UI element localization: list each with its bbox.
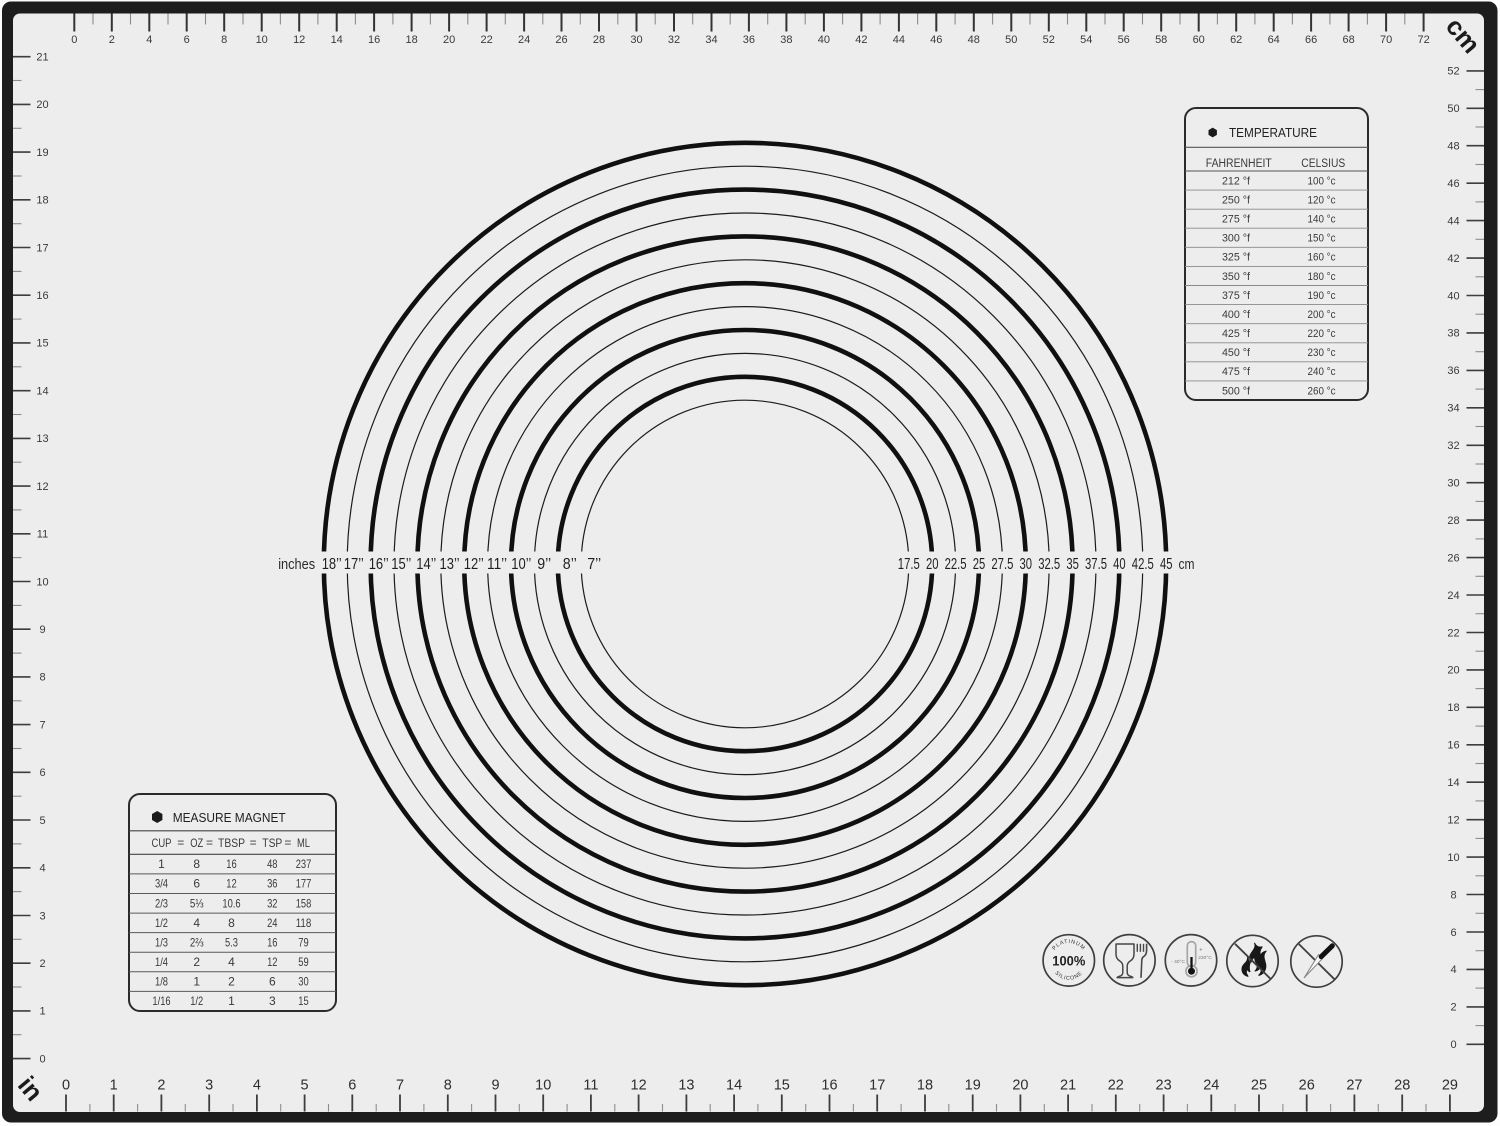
svg-text:14’’: 14’’ (416, 556, 436, 573)
svg-text:20: 20 (443, 34, 455, 46)
svg-text:26: 26 (555, 34, 567, 46)
svg-text:72: 72 (1417, 34, 1429, 46)
svg-text:TBSP: TBSP (218, 836, 245, 850)
svg-text:64: 64 (1268, 34, 1280, 46)
svg-text:28: 28 (593, 34, 605, 46)
svg-text:23: 23 (1156, 1078, 1172, 1094)
svg-text:6: 6 (39, 767, 45, 779)
svg-text:36: 36 (267, 877, 278, 891)
svg-text:118: 118 (296, 916, 312, 930)
svg-text:OZ: OZ (190, 836, 203, 850)
svg-text:2: 2 (193, 955, 200, 969)
svg-text:10: 10 (535, 1078, 551, 1094)
svg-text:4: 4 (39, 863, 45, 875)
svg-text:375 °f: 375 °f (1222, 290, 1251, 302)
svg-text:4: 4 (1450, 964, 1456, 976)
svg-text:160 °c: 160 °c (1308, 252, 1336, 264)
svg-text:212 °f: 212 °f (1222, 175, 1251, 187)
svg-text:29: 29 (1442, 1078, 1458, 1094)
svg-text:30: 30 (1020, 556, 1033, 573)
svg-text:1: 1 (158, 857, 165, 871)
svg-text:100 °c: 100 °c (1308, 175, 1336, 187)
svg-text:450 °f: 450 °f (1222, 347, 1251, 359)
svg-text:325 °f: 325 °f (1222, 252, 1251, 264)
svg-text:32: 32 (267, 896, 278, 910)
svg-text:8: 8 (193, 857, 200, 871)
svg-text:18: 18 (36, 195, 48, 207)
svg-text:18: 18 (917, 1078, 933, 1094)
svg-text:2: 2 (39, 958, 45, 970)
svg-text:22.5: 22.5 (945, 556, 967, 573)
svg-text:3/4: 3/4 (155, 877, 168, 891)
svg-text:15’’: 15’’ (391, 556, 411, 573)
svg-text:8: 8 (221, 34, 227, 46)
svg-text:500 °f: 500 °f (1222, 385, 1251, 397)
svg-text:- 40°C: - 40°C (1171, 959, 1185, 965)
svg-text:11: 11 (37, 529, 48, 541)
svg-text:60: 60 (1193, 34, 1205, 46)
svg-text:50: 50 (1005, 34, 1017, 46)
svg-text:8’’: 8’’ (563, 556, 577, 573)
svg-text:140 °c: 140 °c (1308, 214, 1336, 226)
svg-text:68: 68 (1342, 34, 1354, 46)
svg-text:12: 12 (631, 1078, 647, 1094)
svg-text:56: 56 (1118, 34, 1130, 46)
svg-text:25: 25 (973, 556, 986, 573)
svg-text:19: 19 (965, 1078, 981, 1094)
svg-text:17’’: 17’’ (344, 556, 364, 573)
svg-text:1: 1 (228, 994, 235, 1008)
svg-text:52: 52 (1447, 66, 1459, 78)
svg-text:2: 2 (228, 975, 235, 989)
svg-text:12: 12 (293, 34, 305, 46)
svg-text:2: 2 (109, 34, 115, 46)
svg-text:30: 30 (630, 34, 642, 46)
svg-text:32: 32 (1447, 440, 1459, 452)
svg-text:237: 237 (296, 857, 312, 871)
svg-text:8: 8 (1450, 889, 1456, 901)
svg-text:2: 2 (1450, 1002, 1456, 1014)
svg-text:24: 24 (267, 916, 278, 930)
svg-text:70: 70 (1380, 34, 1392, 46)
svg-text:21: 21 (36, 52, 48, 64)
svg-text:6: 6 (348, 1078, 356, 1094)
svg-text:0: 0 (71, 34, 77, 46)
svg-text:250 °f: 250 °f (1222, 194, 1251, 206)
svg-text:32: 32 (668, 34, 680, 46)
svg-text:24: 24 (1447, 590, 1459, 602)
svg-text:0: 0 (1450, 1039, 1456, 1051)
svg-text:48: 48 (267, 857, 278, 871)
svg-text:8: 8 (444, 1078, 452, 1094)
svg-text:20: 20 (36, 99, 48, 111)
svg-text:18: 18 (405, 34, 417, 46)
svg-text:40: 40 (818, 34, 830, 46)
svg-text:6: 6 (184, 34, 190, 46)
svg-text:2: 2 (157, 1078, 165, 1094)
svg-text:260 °c: 260 °c (1308, 385, 1336, 397)
svg-text:54: 54 (1080, 34, 1092, 46)
svg-text:1/3: 1/3 (155, 935, 168, 949)
svg-text:16: 16 (821, 1078, 837, 1094)
svg-text:220 °c: 220 °c (1308, 328, 1336, 340)
svg-text:17: 17 (869, 1078, 885, 1094)
svg-text:4: 4 (253, 1078, 261, 1094)
svg-text:15: 15 (774, 1078, 790, 1094)
svg-text:8: 8 (39, 672, 45, 684)
svg-text:158: 158 (296, 896, 312, 910)
svg-text:11’’: 11’’ (487, 556, 507, 573)
svg-text:24: 24 (518, 34, 530, 46)
svg-text:40: 40 (1447, 290, 1459, 302)
svg-text:7: 7 (39, 719, 45, 731)
svg-text:1: 1 (193, 975, 200, 989)
svg-text:6: 6 (1450, 927, 1456, 939)
svg-text:100%: 100% (1052, 953, 1085, 968)
svg-text:58: 58 (1155, 34, 1167, 46)
svg-text:1: 1 (39, 1006, 45, 1018)
svg-text:20: 20 (1447, 665, 1459, 677)
svg-text:30: 30 (298, 975, 309, 989)
svg-text:46: 46 (930, 34, 942, 46)
svg-text:1/2: 1/2 (190, 994, 203, 1008)
svg-text:30: 30 (1447, 478, 1459, 490)
svg-text:19: 19 (36, 147, 48, 159)
svg-text:17: 17 (36, 242, 48, 254)
svg-text:3: 3 (269, 994, 276, 1008)
svg-text:16: 16 (36, 290, 48, 302)
svg-text:12: 12 (226, 877, 237, 891)
svg-text:18: 18 (1447, 702, 1459, 714)
svg-text:16: 16 (226, 857, 237, 871)
svg-text:120 °c: 120 °c (1308, 194, 1336, 206)
svg-text:6: 6 (269, 975, 276, 989)
svg-text:0: 0 (62, 1078, 70, 1094)
svg-text:150 °c: 150 °c (1308, 233, 1336, 245)
svg-text:FAHRENHEIT: FAHRENHEIT (1206, 158, 1272, 170)
svg-text:36: 36 (1447, 365, 1459, 377)
svg-text:45: 45 (1160, 556, 1173, 573)
svg-text:22: 22 (1447, 627, 1459, 639)
svg-text:177: 177 (296, 877, 312, 891)
svg-text:42: 42 (1447, 253, 1459, 265)
svg-text:425 °f: 425 °f (1222, 328, 1251, 340)
svg-text:1/4: 1/4 (155, 955, 168, 969)
svg-text:16: 16 (368, 34, 380, 46)
svg-text:1: 1 (110, 1078, 118, 1094)
svg-text:27: 27 (1346, 1078, 1362, 1094)
svg-text:9: 9 (39, 624, 45, 636)
svg-text:1/8: 1/8 (155, 975, 168, 989)
svg-text:36: 36 (743, 34, 755, 46)
svg-text:275 °f: 275 °f (1222, 214, 1251, 226)
svg-text:2⅔: 2⅔ (190, 935, 204, 949)
svg-text:240 °c: 240 °c (1308, 366, 1336, 378)
svg-text:2/3: 2/3 (155, 896, 168, 910)
svg-text:66: 66 (1305, 34, 1317, 46)
svg-text:230 °c: 230 °c (1308, 347, 1336, 359)
svg-text:10’’: 10’’ (511, 556, 531, 573)
svg-text:34: 34 (705, 34, 717, 46)
svg-text:15: 15 (36, 338, 48, 350)
svg-text:34: 34 (1447, 403, 1459, 415)
svg-text:4: 4 (193, 916, 200, 930)
svg-text:59: 59 (298, 955, 309, 969)
svg-text:48: 48 (1447, 141, 1459, 153)
svg-text:200 °c: 200 °c (1308, 309, 1336, 321)
svg-text:28: 28 (1447, 515, 1459, 527)
svg-text:190 °c: 190 °c (1308, 290, 1336, 302)
svg-text:25: 25 (1251, 1078, 1267, 1094)
svg-text:8: 8 (228, 916, 235, 930)
svg-text:35: 35 (1066, 556, 1079, 573)
svg-text:13: 13 (678, 1078, 694, 1094)
svg-text:42: 42 (855, 34, 867, 46)
svg-text:13: 13 (36, 433, 48, 445)
svg-text:14: 14 (1447, 777, 1459, 789)
svg-text:cm: cm (1179, 556, 1195, 573)
svg-text:10.6: 10.6 (222, 896, 240, 910)
svg-text:44: 44 (893, 34, 905, 46)
svg-text:38: 38 (780, 34, 792, 46)
svg-text:18’’: 18’’ (322, 556, 342, 573)
svg-text:+: + (1199, 947, 1203, 953)
svg-text:5: 5 (39, 815, 45, 827)
svg-text:16: 16 (267, 935, 278, 949)
svg-text:400 °f: 400 °f (1222, 309, 1251, 321)
svg-text:79: 79 (298, 935, 309, 949)
svg-text:TEMPERATURE: TEMPERATURE (1229, 126, 1317, 140)
svg-text:10: 10 (36, 576, 48, 588)
svg-text:48: 48 (968, 34, 980, 46)
svg-text:9’’: 9’’ (537, 556, 551, 573)
svg-text:12: 12 (267, 955, 278, 969)
svg-text:17.5: 17.5 (898, 556, 920, 573)
svg-text:10: 10 (256, 34, 268, 46)
svg-text:20: 20 (926, 556, 939, 573)
svg-text:13’’: 13’’ (440, 556, 460, 573)
svg-text:42.5: 42.5 (1132, 556, 1154, 573)
svg-text:44: 44 (1447, 215, 1459, 227)
svg-text:=: = (284, 836, 291, 850)
svg-text:0: 0 (39, 1053, 45, 1065)
svg-text:ML: ML (297, 836, 310, 850)
svg-text:27.5: 27.5 (991, 556, 1013, 573)
svg-text:1/2: 1/2 (155, 916, 168, 930)
svg-text:5.3: 5.3 (225, 935, 238, 949)
svg-text:21: 21 (1060, 1078, 1076, 1094)
svg-text:3: 3 (39, 910, 45, 922)
svg-text:=: = (177, 836, 184, 850)
svg-text:=: = (206, 836, 213, 850)
svg-text:=: = (250, 836, 257, 850)
svg-text:180 °c: 180 °c (1308, 271, 1336, 283)
svg-text:300 °f: 300 °f (1222, 233, 1251, 245)
svg-text:26: 26 (1299, 1078, 1315, 1094)
svg-text:40: 40 (1113, 556, 1126, 573)
svg-text:350 °f: 350 °f (1222, 271, 1251, 283)
svg-text:5: 5 (301, 1078, 309, 1094)
svg-text:26: 26 (1447, 552, 1459, 564)
svg-text:14: 14 (36, 386, 48, 398)
svg-text:6: 6 (193, 877, 200, 891)
svg-text:24: 24 (1203, 1078, 1219, 1094)
svg-text:14: 14 (726, 1078, 742, 1094)
svg-text:46: 46 (1447, 178, 1459, 190)
svg-text:12: 12 (36, 481, 48, 493)
svg-text:12’’: 12’’ (464, 556, 484, 573)
svg-text:MEASURE MAGNET: MEASURE MAGNET (173, 810, 286, 825)
svg-text:10: 10 (1447, 852, 1459, 864)
svg-text:CELSIUS: CELSIUS (1301, 158, 1345, 170)
svg-text:28: 28 (1394, 1078, 1410, 1094)
svg-text:52: 52 (1043, 34, 1055, 46)
svg-text:20: 20 (1012, 1078, 1028, 1094)
svg-text:22: 22 (1108, 1078, 1124, 1094)
svg-text:230°C: 230°C (1198, 955, 1212, 961)
svg-text:5⅓: 5⅓ (190, 896, 204, 910)
svg-text:475 °f: 475 °f (1222, 366, 1251, 378)
svg-text:3: 3 (205, 1078, 213, 1094)
svg-text:12: 12 (1447, 815, 1459, 827)
svg-text:7: 7 (396, 1078, 404, 1094)
svg-text:16: 16 (1447, 740, 1459, 752)
svg-text:4: 4 (146, 34, 152, 46)
svg-text:15: 15 (298, 994, 309, 1008)
svg-text:4: 4 (228, 955, 235, 969)
svg-text:37.5: 37.5 (1085, 556, 1107, 573)
svg-text:TSP: TSP (262, 836, 282, 850)
svg-text:14: 14 (331, 34, 343, 46)
svg-text:38: 38 (1447, 328, 1459, 340)
svg-text:62: 62 (1230, 34, 1242, 46)
svg-text:7’’: 7’’ (587, 556, 601, 573)
svg-text:50: 50 (1447, 103, 1459, 115)
svg-text:32.5: 32.5 (1038, 556, 1060, 573)
svg-text:22: 22 (480, 34, 492, 46)
svg-text:1/16: 1/16 (152, 994, 170, 1008)
svg-text:11: 11 (583, 1078, 598, 1094)
svg-text:inches: inches (278, 556, 315, 573)
svg-text:CUP: CUP (152, 836, 172, 850)
svg-text:16’’: 16’’ (369, 556, 389, 573)
svg-text:9: 9 (491, 1078, 499, 1094)
